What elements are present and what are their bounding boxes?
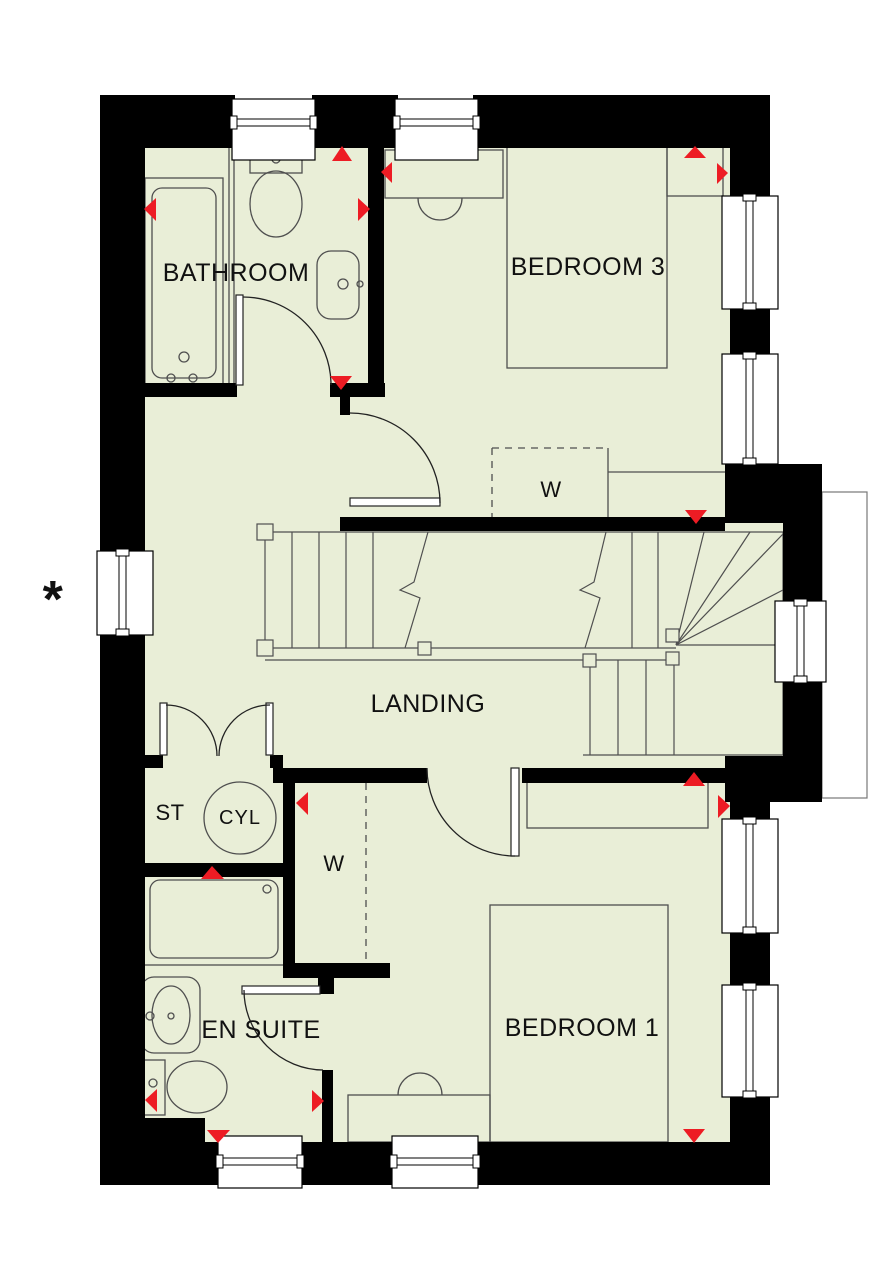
window-landing-left <box>97 549 153 636</box>
stair-newel-post <box>257 640 273 656</box>
external-feature-outline <box>822 492 867 798</box>
window-bedroom1-right-1 <box>722 817 778 934</box>
stair-newel-post <box>418 642 431 655</box>
bathroom-door-leaf <box>236 295 243 385</box>
window-bedroom3-right-2 <box>722 352 778 465</box>
stair-newel-post <box>666 652 679 665</box>
window-bedroom1-bottom <box>390 1136 480 1188</box>
stair-newel-post <box>257 524 273 540</box>
room-label-wardrobe-bedroom3: W <box>521 477 581 503</box>
floor-plan-page: BATHROOM BEDROOM 3 LANDING W W ST CYL EN… <box>0 0 875 1287</box>
ensuite-door-leaf <box>242 986 320 994</box>
floor-plan-canvas <box>0 0 875 1287</box>
store-door-leaf-left <box>160 703 167 755</box>
window-bedroom3-right-1 <box>722 194 778 310</box>
window-bedroom1-right-2 <box>722 983 778 1098</box>
window-ensuite-bottom <box>216 1136 304 1188</box>
window-stair-bay <box>775 599 826 683</box>
room-label-bedroom3: BEDROOM 3 <box>496 253 680 282</box>
bedroom3-door-leaf <box>350 498 440 506</box>
room-label-bathroom: BATHROOM <box>146 259 326 288</box>
window-bathroom-top <box>230 99 317 160</box>
room-label-wardrobe-bedroom1: W <box>304 851 364 877</box>
store-door-leaf-right <box>266 703 273 755</box>
room-label-landing: LANDING <box>338 690 518 719</box>
bedroom1-door-leaf <box>511 768 519 856</box>
window-bedroom3-top <box>393 99 480 160</box>
stair-newel-post <box>583 654 596 667</box>
room-label-store: ST <box>140 800 200 826</box>
stair-newel-post <box>666 629 679 642</box>
main-floor <box>143 145 735 1143</box>
room-label-ensuite: EN SUITE <box>171 1016 351 1045</box>
room-label-bedroom1: BEDROOM 1 <box>490 1014 674 1043</box>
exterior-asterisk-marker: * <box>28 570 78 630</box>
room-label-cylinder: CYL <box>203 807 277 830</box>
